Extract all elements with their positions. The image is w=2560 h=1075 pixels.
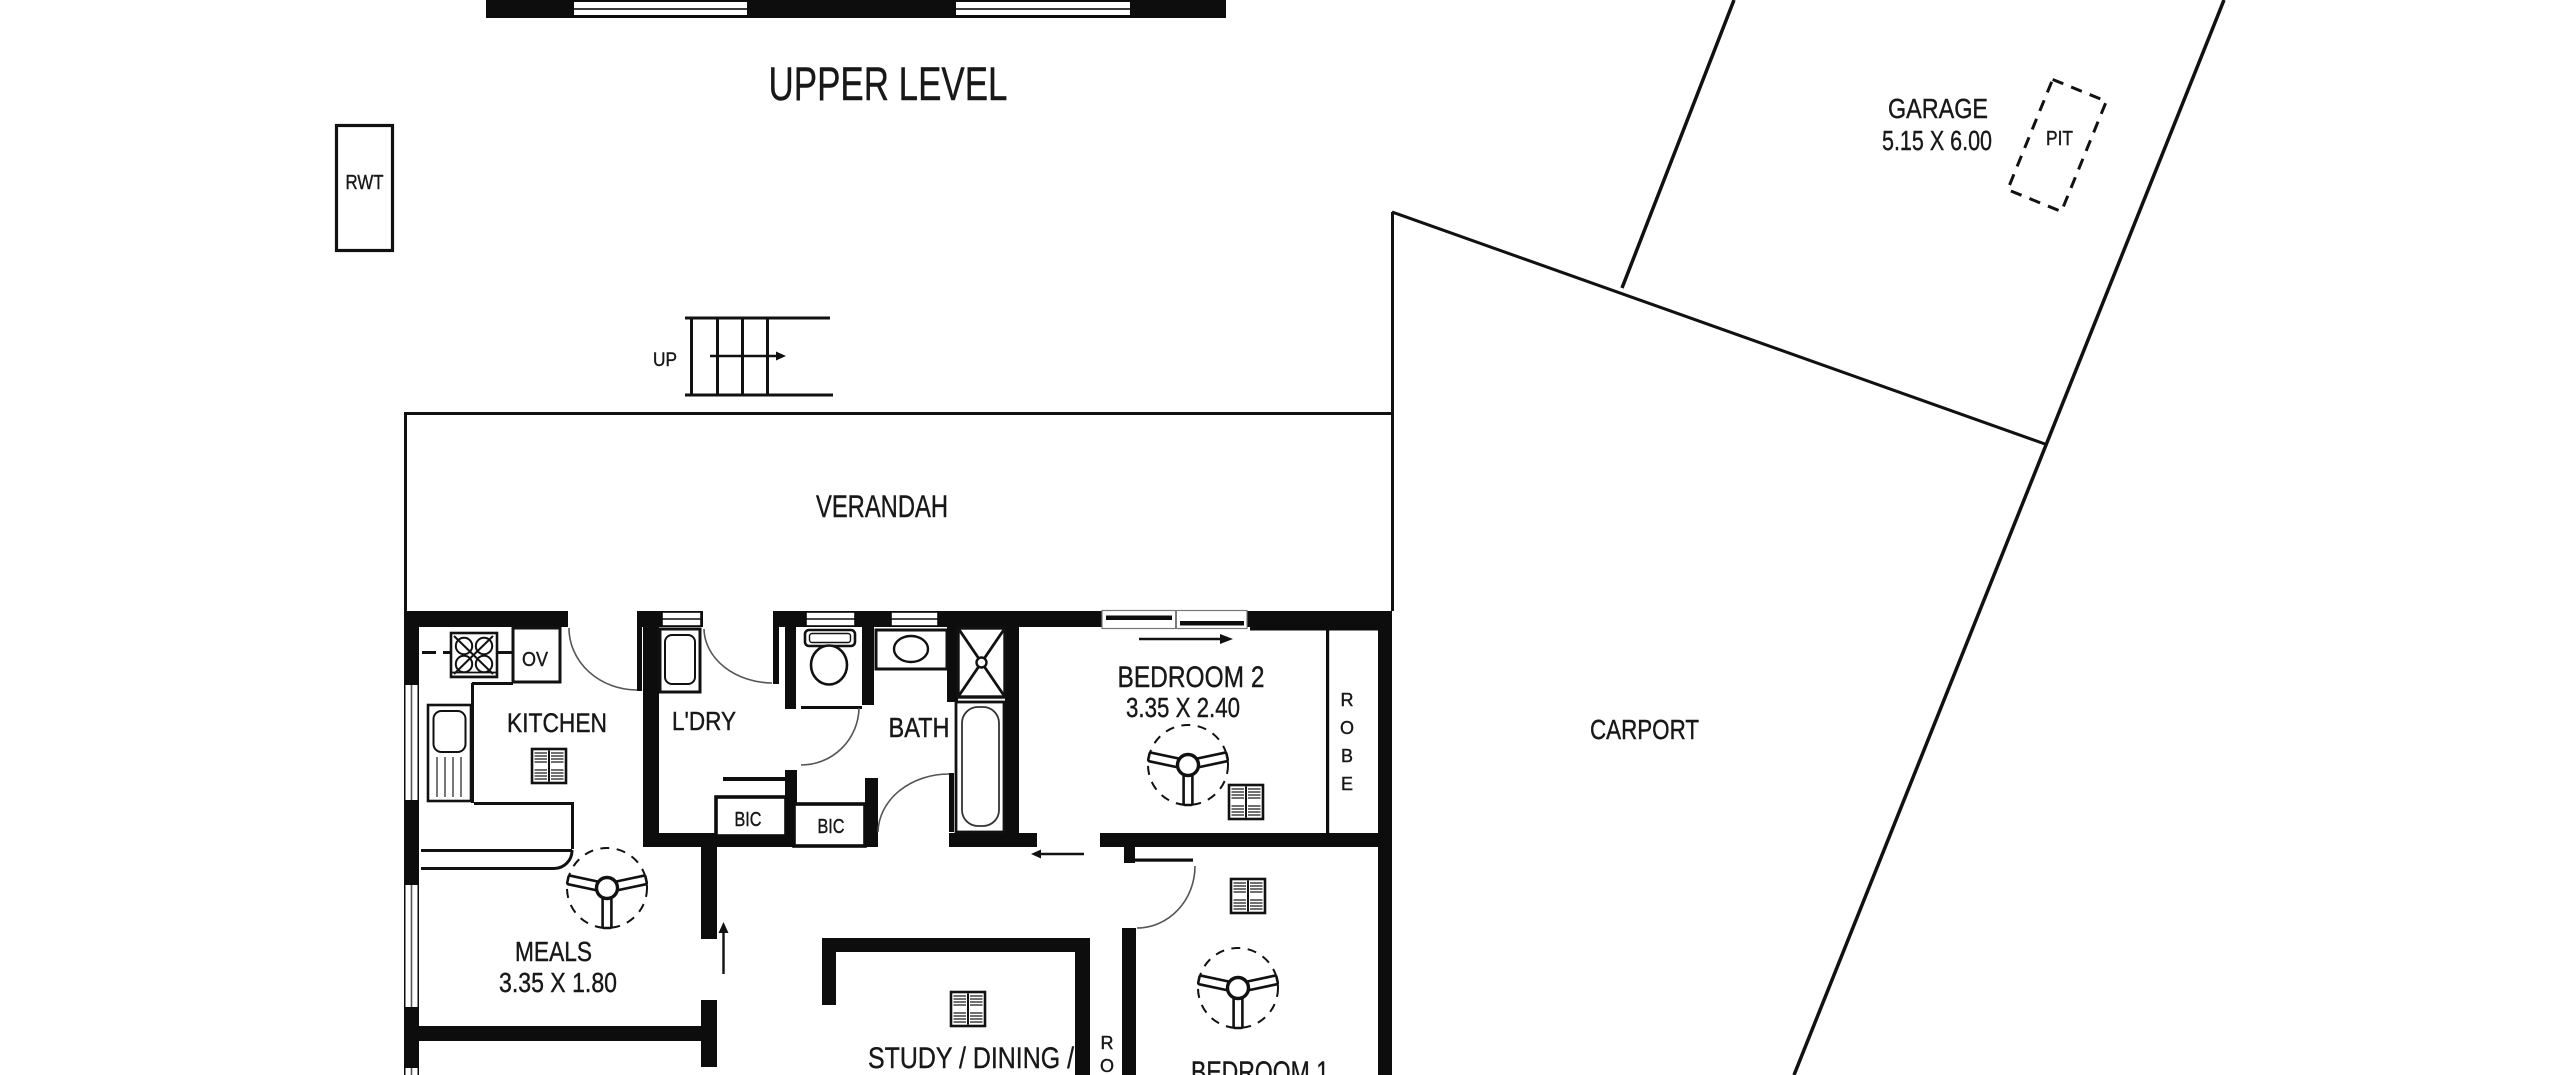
svg-text:MEALS: MEALS (515, 936, 592, 967)
svg-text:B: B (1341, 746, 1353, 766)
svg-text:RWT: RWT (346, 172, 384, 194)
svg-text:VERANDAH: VERANDAH (816, 488, 948, 524)
svg-text:BIC: BIC (735, 809, 762, 831)
svg-text:BATH: BATH (889, 712, 950, 743)
svg-text:UP: UP (653, 350, 677, 371)
svg-text:BIC: BIC (818, 816, 845, 838)
svg-text:E: E (1341, 774, 1353, 794)
svg-text:GARAGE: GARAGE (1888, 93, 1988, 124)
svg-text:3.35 X 2.40: 3.35 X 2.40 (1126, 692, 1240, 723)
svg-text:R: R (1101, 1033, 1114, 1053)
svg-text:BEDROOM 1: BEDROOM 1 (1191, 1056, 1329, 1075)
svg-text:O: O (1340, 718, 1354, 738)
svg-text:5.15 X 6.00: 5.15 X 6.00 (1882, 125, 1992, 156)
svg-text:KITCHEN: KITCHEN (507, 708, 607, 738)
svg-text:STUDY / DINING /: STUDY / DINING / (868, 1042, 1075, 1075)
svg-text:L'DRY: L'DRY (672, 706, 736, 736)
svg-text:CARPORT: CARPORT (1590, 714, 1699, 745)
svg-text:UPPER LEVEL: UPPER LEVEL (769, 57, 1008, 110)
svg-text:PIT: PIT (2046, 128, 2073, 150)
svg-text:3.35 X 1.80: 3.35 X 1.80 (499, 967, 617, 998)
svg-text:R: R (1341, 690, 1354, 710)
svg-text:O: O (1100, 1056, 1114, 1075)
svg-text:OV: OV (522, 649, 549, 671)
svg-text:BEDROOM 2: BEDROOM 2 (1118, 661, 1265, 694)
